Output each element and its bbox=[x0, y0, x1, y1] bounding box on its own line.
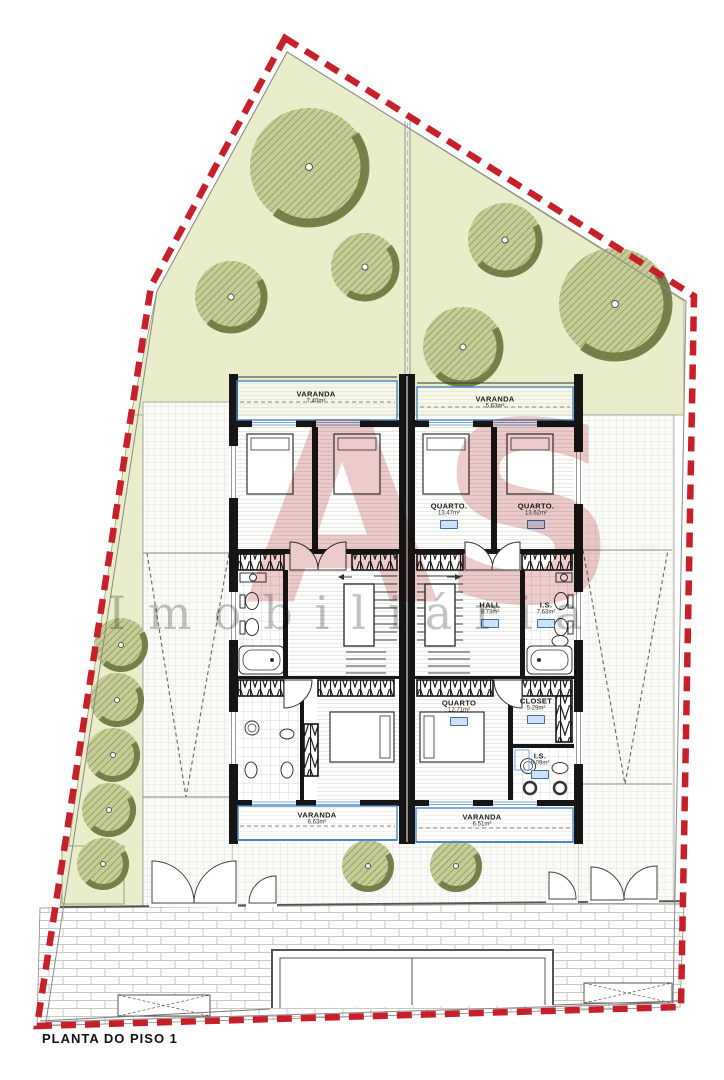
wardrobe-icon bbox=[417, 680, 493, 696]
sink-icon bbox=[521, 759, 536, 774]
building bbox=[229, 374, 583, 844]
sink-icon bbox=[552, 636, 568, 647]
floor-plan-canvas: VARANDA 7.40m² VARANDA 5.63m² QUARTO. 13… bbox=[0, 0, 724, 1080]
sink-icon bbox=[240, 573, 266, 582]
sink-icon bbox=[552, 763, 568, 774]
site-plan-graphics bbox=[0, 0, 724, 1080]
wardrobe-icon bbox=[318, 680, 394, 696]
bed-icon bbox=[507, 434, 553, 494]
sink-icon bbox=[280, 729, 294, 739]
wardrobe-icon bbox=[522, 680, 572, 696]
bed-icon bbox=[330, 712, 394, 762]
bed-icon bbox=[247, 434, 293, 494]
bidet-icon bbox=[240, 619, 259, 636]
sink-icon bbox=[556, 573, 572, 582]
wardrobe-icon bbox=[352, 554, 397, 570]
wardrobe-icon bbox=[304, 724, 318, 776]
toilet-icon bbox=[245, 762, 257, 778]
bidet-icon bbox=[555, 619, 574, 636]
retaining-wall-right bbox=[584, 983, 672, 1003]
bed-icon bbox=[334, 434, 380, 494]
bed-icon bbox=[423, 434, 469, 494]
toilet-icon bbox=[524, 782, 536, 794]
toilet-icon bbox=[555, 593, 574, 610]
page-title: PLANTA DO PISO 1 bbox=[42, 1031, 178, 1046]
wardrobe-icon bbox=[556, 696, 572, 742]
bathtub-icon bbox=[239, 646, 284, 674]
bathtub-icon bbox=[527, 646, 572, 674]
wardrobe-icon bbox=[238, 554, 284, 570]
sink-icon bbox=[245, 721, 259, 735]
wardrobe-icon bbox=[522, 554, 572, 570]
bed-icon bbox=[420, 712, 484, 762]
wardrobe-icon bbox=[417, 554, 463, 570]
toilet-icon bbox=[240, 593, 259, 610]
wardrobe-icon bbox=[238, 680, 284, 696]
toilet-icon bbox=[281, 762, 293, 778]
street-area bbox=[37, 903, 684, 1026]
toilet-icon bbox=[554, 782, 566, 794]
